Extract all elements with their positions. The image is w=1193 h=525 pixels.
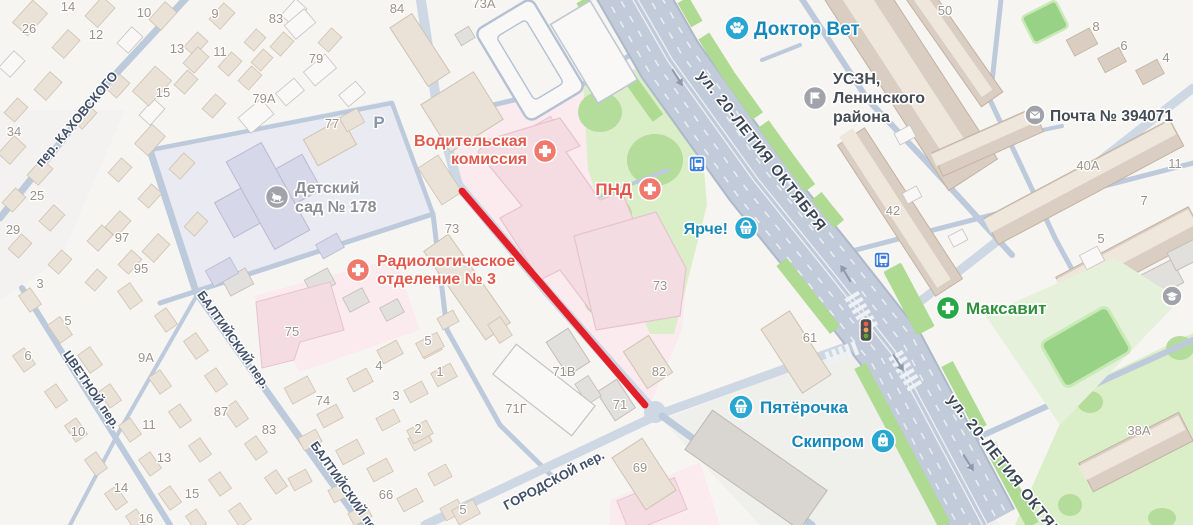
svg-text:15: 15 xyxy=(156,85,170,100)
svg-text:района: района xyxy=(833,109,890,126)
svg-text:4: 4 xyxy=(1162,50,1169,65)
svg-text:69: 69 xyxy=(633,460,647,475)
svg-text:4: 4 xyxy=(375,358,382,373)
svg-text:11: 11 xyxy=(213,44,227,59)
svg-text:97: 97 xyxy=(115,230,129,245)
svg-text:16: 16 xyxy=(139,511,153,525)
svg-text:95: 95 xyxy=(134,261,148,276)
svg-text:83: 83 xyxy=(269,11,283,26)
svg-text:15: 15 xyxy=(185,486,199,501)
svg-text:Максавит: Максавит xyxy=(966,299,1046,318)
svg-text:73: 73 xyxy=(653,278,667,293)
svg-text:71Г: 71Г xyxy=(505,401,527,416)
svg-text:5: 5 xyxy=(424,333,431,348)
svg-text:Радиологическое: Радиологическое xyxy=(377,253,515,270)
svg-text:8: 8 xyxy=(1092,19,1099,34)
svg-text:УСЗН,: УСЗН, xyxy=(833,71,880,88)
svg-text:5: 5 xyxy=(1097,231,1104,246)
svg-text:13: 13 xyxy=(170,41,184,56)
svg-text:40А: 40А xyxy=(1076,158,1099,173)
svg-text:77: 77 xyxy=(325,116,339,131)
svg-text:79А: 79А xyxy=(252,91,275,106)
svg-text:комиссия: комиссия xyxy=(451,151,527,168)
svg-text:42: 42 xyxy=(886,203,900,218)
svg-text:14: 14 xyxy=(61,0,75,14)
svg-text:10: 10 xyxy=(137,5,151,20)
svg-text:6: 6 xyxy=(24,348,31,363)
svg-text:10: 10 xyxy=(71,424,85,439)
svg-text:79: 79 xyxy=(309,51,323,66)
svg-text:сад № 178: сад № 178 xyxy=(295,199,377,216)
svg-text:71В: 71В xyxy=(552,364,575,379)
svg-text:34: 34 xyxy=(7,124,21,139)
svg-text:7: 7 xyxy=(1140,193,1147,208)
svg-text:25: 25 xyxy=(30,188,44,203)
svg-text:Детский: Детский xyxy=(295,180,359,197)
svg-text:82: 82 xyxy=(652,364,666,379)
svg-text:50: 50 xyxy=(938,3,952,18)
svg-text:3: 3 xyxy=(36,276,43,291)
svg-text:отделение № 3: отделение № 3 xyxy=(377,271,496,288)
svg-text:5: 5 xyxy=(64,313,71,328)
svg-text:74: 74 xyxy=(316,393,330,408)
svg-text:66: 66 xyxy=(379,487,393,502)
svg-text:14: 14 xyxy=(114,480,128,495)
svg-text:Ярче!: Ярче! xyxy=(684,221,728,238)
svg-text:9: 9 xyxy=(211,6,218,21)
svg-text:73: 73 xyxy=(445,221,459,236)
svg-text:84: 84 xyxy=(390,1,404,16)
svg-text:61: 61 xyxy=(803,330,817,345)
svg-text:5: 5 xyxy=(459,502,466,517)
svg-text:6: 6 xyxy=(1120,38,1127,53)
svg-text:Р: Р xyxy=(373,113,384,132)
svg-text:2: 2 xyxy=(414,421,421,436)
svg-text:Почта № 394071: Почта № 394071 xyxy=(1050,108,1173,125)
svg-text:26: 26 xyxy=(22,21,36,36)
svg-text:83: 83 xyxy=(262,422,276,437)
svg-text:11: 11 xyxy=(142,417,156,432)
svg-text:38А: 38А xyxy=(1127,423,1150,438)
svg-text:13: 13 xyxy=(157,450,171,465)
svg-text:Скипром: Скипром xyxy=(792,433,864,451)
svg-text:87: 87 xyxy=(214,404,228,419)
svg-text:Доктор Вет: Доктор Вет xyxy=(754,19,860,40)
svg-text:73А: 73А xyxy=(472,0,495,11)
svg-text:Пятёрочка: Пятёрочка xyxy=(760,398,849,417)
svg-text:ПНД: ПНД xyxy=(595,180,632,199)
svg-text:29: 29 xyxy=(6,222,20,237)
svg-text:Ленинского: Ленинского xyxy=(833,90,925,107)
svg-text:9А: 9А xyxy=(138,350,154,365)
svg-text:Водительская: Водительская xyxy=(414,133,527,150)
svg-text:12: 12 xyxy=(89,27,103,42)
svg-text:11: 11 xyxy=(1168,156,1182,171)
svg-text:3: 3 xyxy=(392,388,399,403)
svg-text:75: 75 xyxy=(285,324,299,339)
svg-text:71: 71 xyxy=(613,397,627,412)
svg-text:1: 1 xyxy=(436,364,443,379)
